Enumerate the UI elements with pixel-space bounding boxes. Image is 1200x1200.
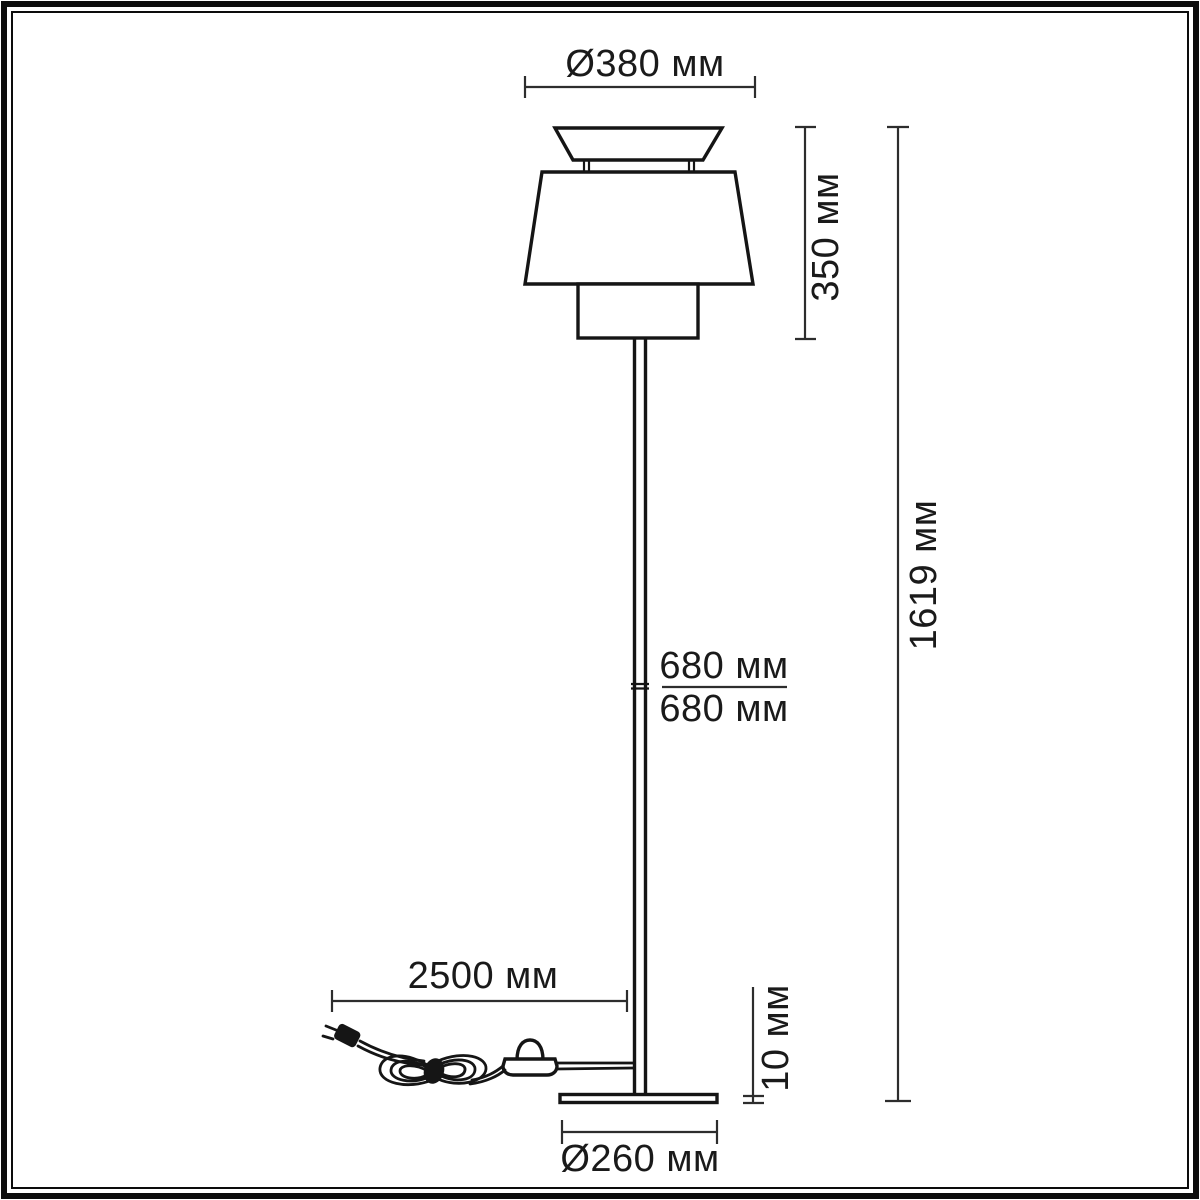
foot-switch-dome xyxy=(517,1040,543,1060)
lamp-top-bowl xyxy=(555,128,722,160)
dimension-shade-height: 350 мм xyxy=(795,127,847,339)
lamp-technical-drawing: Ø380 мм 350 мм 1619 мм 680 мм 680 мм xyxy=(0,0,1200,1200)
base-height-label: 10 мм xyxy=(755,984,797,1092)
cord-to-pole xyxy=(556,1063,633,1069)
lamp-inner-drum xyxy=(578,284,698,338)
lamp-main-shade xyxy=(525,172,753,284)
base-diameter-label: Ø260 мм xyxy=(560,1138,719,1180)
dimension-total-height: 1619 мм xyxy=(885,127,945,1101)
lamp-pole xyxy=(635,338,646,1095)
lower-segment-label: 680 мм xyxy=(659,688,788,730)
bowl-connector-posts xyxy=(584,160,694,172)
cord-length-label: 2500 мм xyxy=(408,955,559,997)
shade-height-label: 350 мм xyxy=(805,172,847,301)
lamp-base-plate xyxy=(560,1095,717,1103)
total-height-label: 1619 мм xyxy=(903,500,945,651)
shade-diameter-label: Ø380 мм xyxy=(565,43,724,85)
power-plug xyxy=(323,1023,362,1049)
drawing-canvas: Ø380 мм 350 мм 1619 мм 680 мм 680 мм xyxy=(0,0,1200,1200)
foot-switch-base xyxy=(503,1059,557,1075)
dimension-pole-segments: 680 мм 680 мм xyxy=(659,645,788,730)
cord-coil-to-switch xyxy=(472,1066,503,1080)
lamp-figure xyxy=(525,128,753,1103)
power-cord-assembly xyxy=(323,1023,633,1087)
dimension-base-diameter: Ø260 мм xyxy=(560,1120,719,1180)
dimension-cord-length: 2500 мм xyxy=(332,955,627,1012)
foot-switch xyxy=(503,1040,557,1075)
dimension-base-height: 10 мм xyxy=(743,984,797,1103)
upper-segment-label: 680 мм xyxy=(659,645,788,687)
dimension-shade-diameter: Ø380 мм xyxy=(525,43,755,98)
